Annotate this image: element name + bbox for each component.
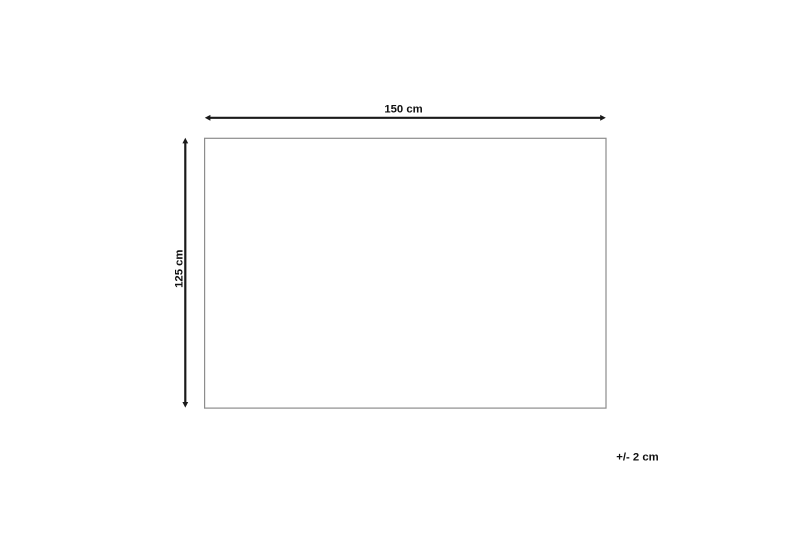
svg-text:+/- 2 cm: +/- 2 cm xyxy=(616,452,658,464)
svg-text:150 cm: 150 cm xyxy=(384,103,422,115)
svg-text:125 cm: 125 cm xyxy=(173,250,185,288)
